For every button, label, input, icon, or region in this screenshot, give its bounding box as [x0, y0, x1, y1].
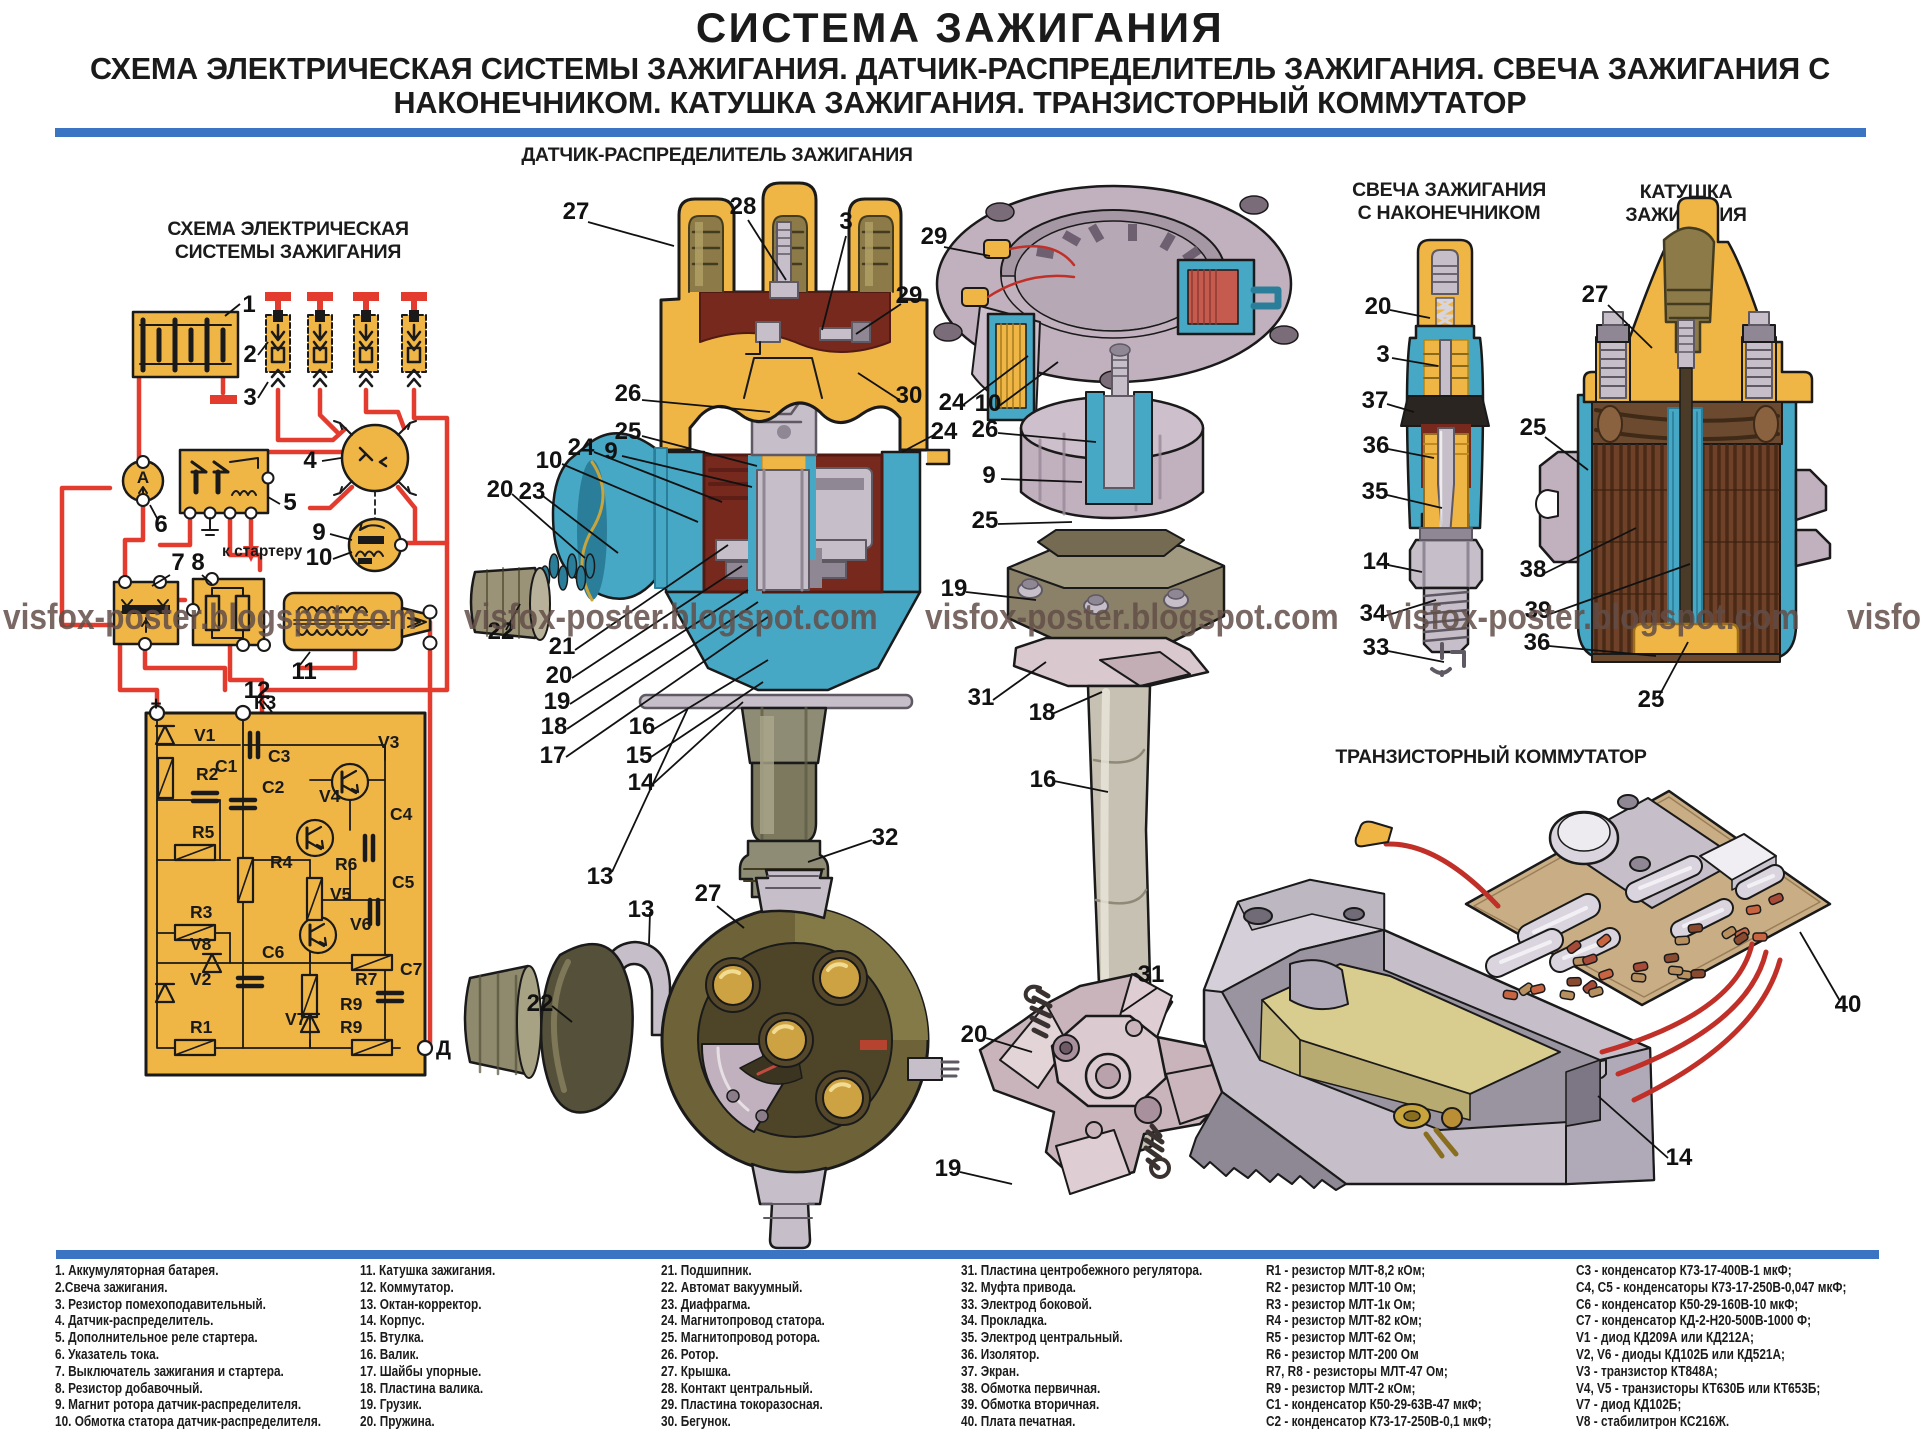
svg-text:25: 25 [1520, 414, 1547, 441]
svg-text:26: 26 [972, 416, 999, 443]
svg-text:7: 7 [171, 549, 184, 576]
svg-text:R3: R3 [190, 902, 213, 922]
svg-text:2: 2 [243, 341, 256, 368]
svg-text:24: 24 [568, 434, 595, 461]
svg-text:R9: R9 [340, 1017, 363, 1037]
svg-text:A: A [137, 468, 149, 487]
svg-text:27: 27 [563, 198, 590, 225]
svg-text:V7: V7 [285, 1009, 306, 1029]
svg-text:C5: C5 [392, 872, 415, 892]
svg-text:3: 3 [839, 208, 852, 235]
svg-text:13: 13 [628, 896, 655, 923]
svg-text:14: 14 [1666, 1144, 1693, 1171]
svg-text:8: 8 [191, 549, 204, 576]
svg-text:40: 40 [1835, 991, 1862, 1018]
svg-text:R9: R9 [340, 994, 363, 1014]
svg-text:19: 19 [544, 688, 571, 715]
svg-text:9: 9 [312, 519, 325, 546]
svg-text:R4: R4 [270, 852, 293, 872]
svg-text:10: 10 [975, 390, 1002, 417]
svg-text:20: 20 [487, 476, 514, 503]
svg-text:25: 25 [615, 418, 642, 445]
svg-text:20: 20 [546, 662, 573, 689]
svg-text:10: 10 [536, 447, 563, 474]
svg-text:23: 23 [519, 478, 546, 505]
svg-text:16: 16 [629, 713, 656, 740]
svg-text:11: 11 [291, 658, 316, 685]
svg-text:18: 18 [541, 713, 568, 740]
svg-text:C7: C7 [400, 959, 422, 979]
svg-text:V5: V5 [330, 884, 352, 904]
svg-text:R6: R6 [335, 854, 358, 874]
svg-text:V2: V2 [190, 969, 212, 989]
svg-text:24: 24 [931, 418, 958, 445]
svg-text:V4: V4 [319, 786, 341, 806]
svg-text:24: 24 [939, 389, 966, 416]
svg-text:25: 25 [972, 507, 999, 534]
svg-text:22: 22 [527, 990, 554, 1017]
svg-text:V3: V3 [378, 732, 400, 752]
svg-text:C6: C6 [262, 942, 285, 962]
svg-text:34: 34 [1360, 600, 1387, 627]
svg-text:31: 31 [1138, 961, 1165, 988]
svg-text:27: 27 [1582, 281, 1609, 308]
svg-text:R1: R1 [190, 1017, 213, 1037]
svg-text:38: 38 [1520, 556, 1547, 583]
svg-text:31: 31 [968, 684, 995, 711]
svg-text:29: 29 [921, 223, 948, 250]
svg-text:5: 5 [283, 489, 296, 516]
svg-text:V1: V1 [194, 725, 216, 745]
svg-text:29: 29 [896, 282, 923, 309]
svg-text:к стартеру: к стартеру [222, 543, 303, 560]
svg-text:14: 14 [628, 769, 655, 796]
svg-text:10: 10 [306, 544, 333, 571]
svg-text:37: 37 [1362, 387, 1389, 414]
svg-text:C4: C4 [390, 804, 413, 824]
svg-text:35: 35 [1362, 478, 1389, 505]
svg-text:R7: R7 [355, 969, 377, 989]
svg-text:V8: V8 [190, 934, 212, 954]
svg-text:16: 16 [1030, 766, 1057, 793]
svg-text:32: 32 [872, 824, 899, 851]
svg-text:20: 20 [961, 1021, 988, 1048]
svg-text:18: 18 [1029, 699, 1056, 726]
svg-text:3: 3 [243, 384, 256, 411]
svg-text:14: 14 [1363, 548, 1390, 575]
svg-text:19: 19 [935, 1155, 962, 1182]
svg-text:15: 15 [626, 742, 653, 769]
svg-text:36: 36 [1363, 432, 1390, 459]
svg-text:9: 9 [982, 462, 995, 489]
svg-text:33: 33 [1363, 634, 1390, 661]
svg-text:3: 3 [1376, 341, 1389, 368]
svg-text:25: 25 [1638, 686, 1665, 713]
svg-text:6: 6 [154, 511, 167, 538]
svg-text:+: + [150, 694, 161, 715]
svg-text:26: 26 [615, 380, 642, 407]
svg-text:К3: К3 [254, 693, 276, 714]
svg-text:1: 1 [242, 291, 255, 318]
svg-text:20: 20 [1365, 293, 1392, 320]
svg-text:30: 30 [896, 382, 923, 409]
svg-text:17: 17 [540, 742, 567, 769]
svg-text:C3: C3 [268, 746, 291, 766]
svg-text:27: 27 [695, 880, 722, 907]
svg-text:V6: V6 [350, 914, 372, 934]
svg-text:13: 13 [587, 863, 614, 890]
svg-text:Д: Д [436, 1037, 451, 1060]
svg-text:28: 28 [730, 193, 757, 220]
svg-text:C1: C1 [215, 756, 238, 776]
svg-text:C2: C2 [262, 777, 285, 797]
svg-text:R5: R5 [192, 822, 215, 842]
svg-text:4: 4 [303, 447, 317, 474]
